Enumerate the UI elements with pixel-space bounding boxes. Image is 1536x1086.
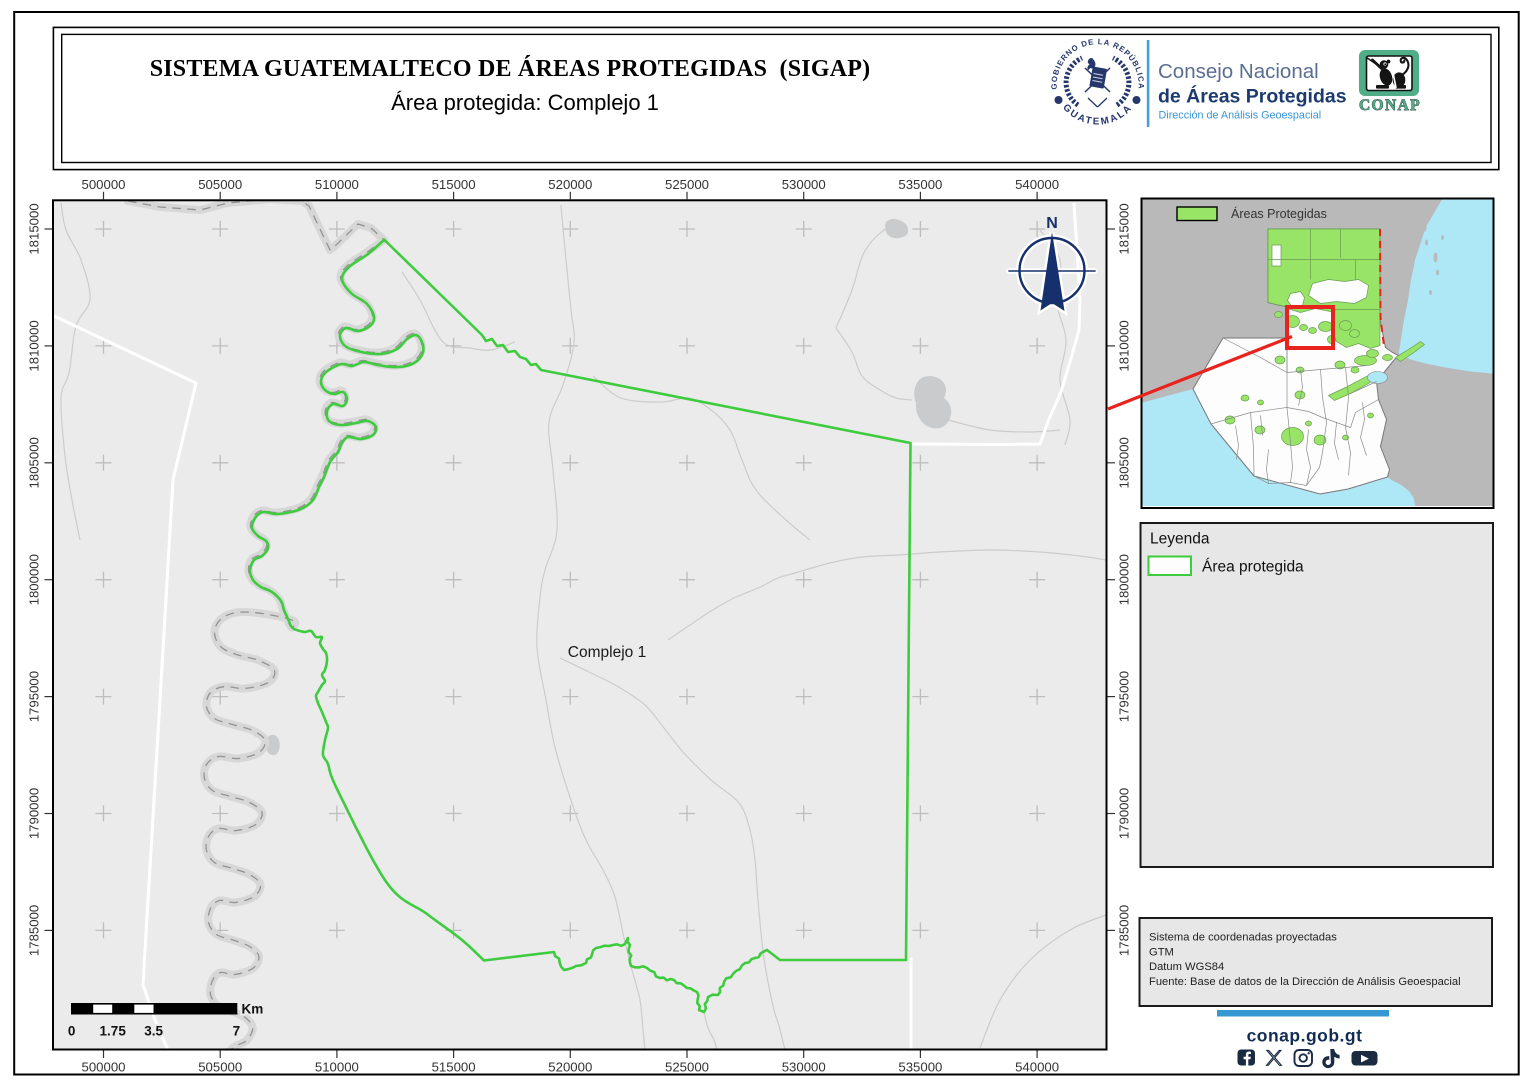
svg-text:1785000: 1785000: [1117, 905, 1132, 956]
svg-text:500000: 500000: [81, 177, 125, 192]
svg-text:515000: 515000: [432, 1060, 476, 1075]
svg-text:1810000: 1810000: [1117, 320, 1132, 371]
svg-text:3.5: 3.5: [144, 1024, 163, 1039]
svg-text:510000: 510000: [315, 1060, 359, 1075]
svg-text:conap.gob.gt: conap.gob.gt: [1247, 1026, 1363, 1046]
svg-text:1795000: 1795000: [1117, 671, 1132, 722]
svg-text:520000: 520000: [548, 1060, 592, 1075]
svg-text:520000: 520000: [548, 177, 592, 192]
svg-text:Área protegida: Área protegida: [1202, 559, 1304, 576]
svg-text:500000: 500000: [81, 1060, 125, 1075]
svg-text:1800000: 1800000: [1117, 554, 1132, 605]
svg-text:1810000: 1810000: [27, 320, 42, 371]
svg-text:Fuente: Base de datos de la Di: Fuente: Base de datos de la Dirección de…: [1149, 976, 1461, 988]
svg-text:510000: 510000: [315, 177, 359, 192]
svg-text:1790000: 1790000: [27, 788, 42, 839]
svg-text:de Áreas Protegidas: de Áreas Protegidas: [1158, 85, 1347, 108]
svg-text:CONAP: CONAP: [1359, 97, 1421, 114]
svg-text:1805000: 1805000: [1117, 437, 1132, 488]
svg-text:Leyenda: Leyenda: [1150, 531, 1210, 548]
svg-text:7: 7: [233, 1024, 241, 1039]
svg-text:Sistema de coordenadas proyect: Sistema de coordenadas proyectadas: [1149, 932, 1337, 944]
svg-text:505000: 505000: [198, 177, 242, 192]
svg-text:1815000: 1815000: [27, 203, 42, 254]
svg-text:515000: 515000: [432, 177, 476, 192]
svg-text:SISTEMA GUATEMALTECO DE ÁREAS: SISTEMA GUATEMALTECO DE ÁREAS PROTEGIDAS…: [150, 56, 871, 82]
svg-text:Áreas Protegidas: Áreas Protegidas: [1231, 206, 1327, 221]
svg-text:530000: 530000: [782, 177, 826, 192]
svg-text:540000: 540000: [1015, 177, 1059, 192]
svg-text:1800000: 1800000: [27, 554, 42, 605]
svg-text:Área protegida: Complejo 1: Área protegida: Complejo 1: [391, 90, 659, 115]
svg-text:525000: 525000: [665, 1060, 709, 1075]
svg-text:1785000: 1785000: [27, 905, 42, 956]
svg-text:505000: 505000: [198, 1060, 242, 1075]
svg-text:535000: 535000: [898, 177, 942, 192]
svg-text:Dirección de Análisis Geoespac: Dirección de Análisis Geoespacial: [1159, 110, 1322, 122]
svg-text:1815000: 1815000: [1117, 203, 1132, 254]
svg-text:N: N: [1046, 215, 1058, 232]
svg-text:Km: Km: [242, 1002, 264, 1017]
svg-text:1790000: 1790000: [1117, 788, 1132, 839]
svg-text:Consejo Nacional: Consejo Nacional: [1158, 60, 1319, 83]
svg-text:1795000: 1795000: [27, 671, 42, 722]
svg-text:Complejo 1: Complejo 1: [568, 644, 646, 661]
svg-text:0: 0: [68, 1024, 76, 1039]
svg-text:525000: 525000: [665, 177, 709, 192]
svg-text:1805000: 1805000: [27, 437, 42, 488]
svg-text:540000: 540000: [1015, 1060, 1059, 1075]
svg-text:GTM: GTM: [1149, 946, 1174, 958]
svg-text:530000: 530000: [782, 1060, 826, 1075]
svg-text:Datum WGS84: Datum WGS84: [1149, 961, 1224, 973]
svg-text:535000: 535000: [898, 1060, 942, 1075]
svg-text:1.75: 1.75: [100, 1024, 127, 1039]
